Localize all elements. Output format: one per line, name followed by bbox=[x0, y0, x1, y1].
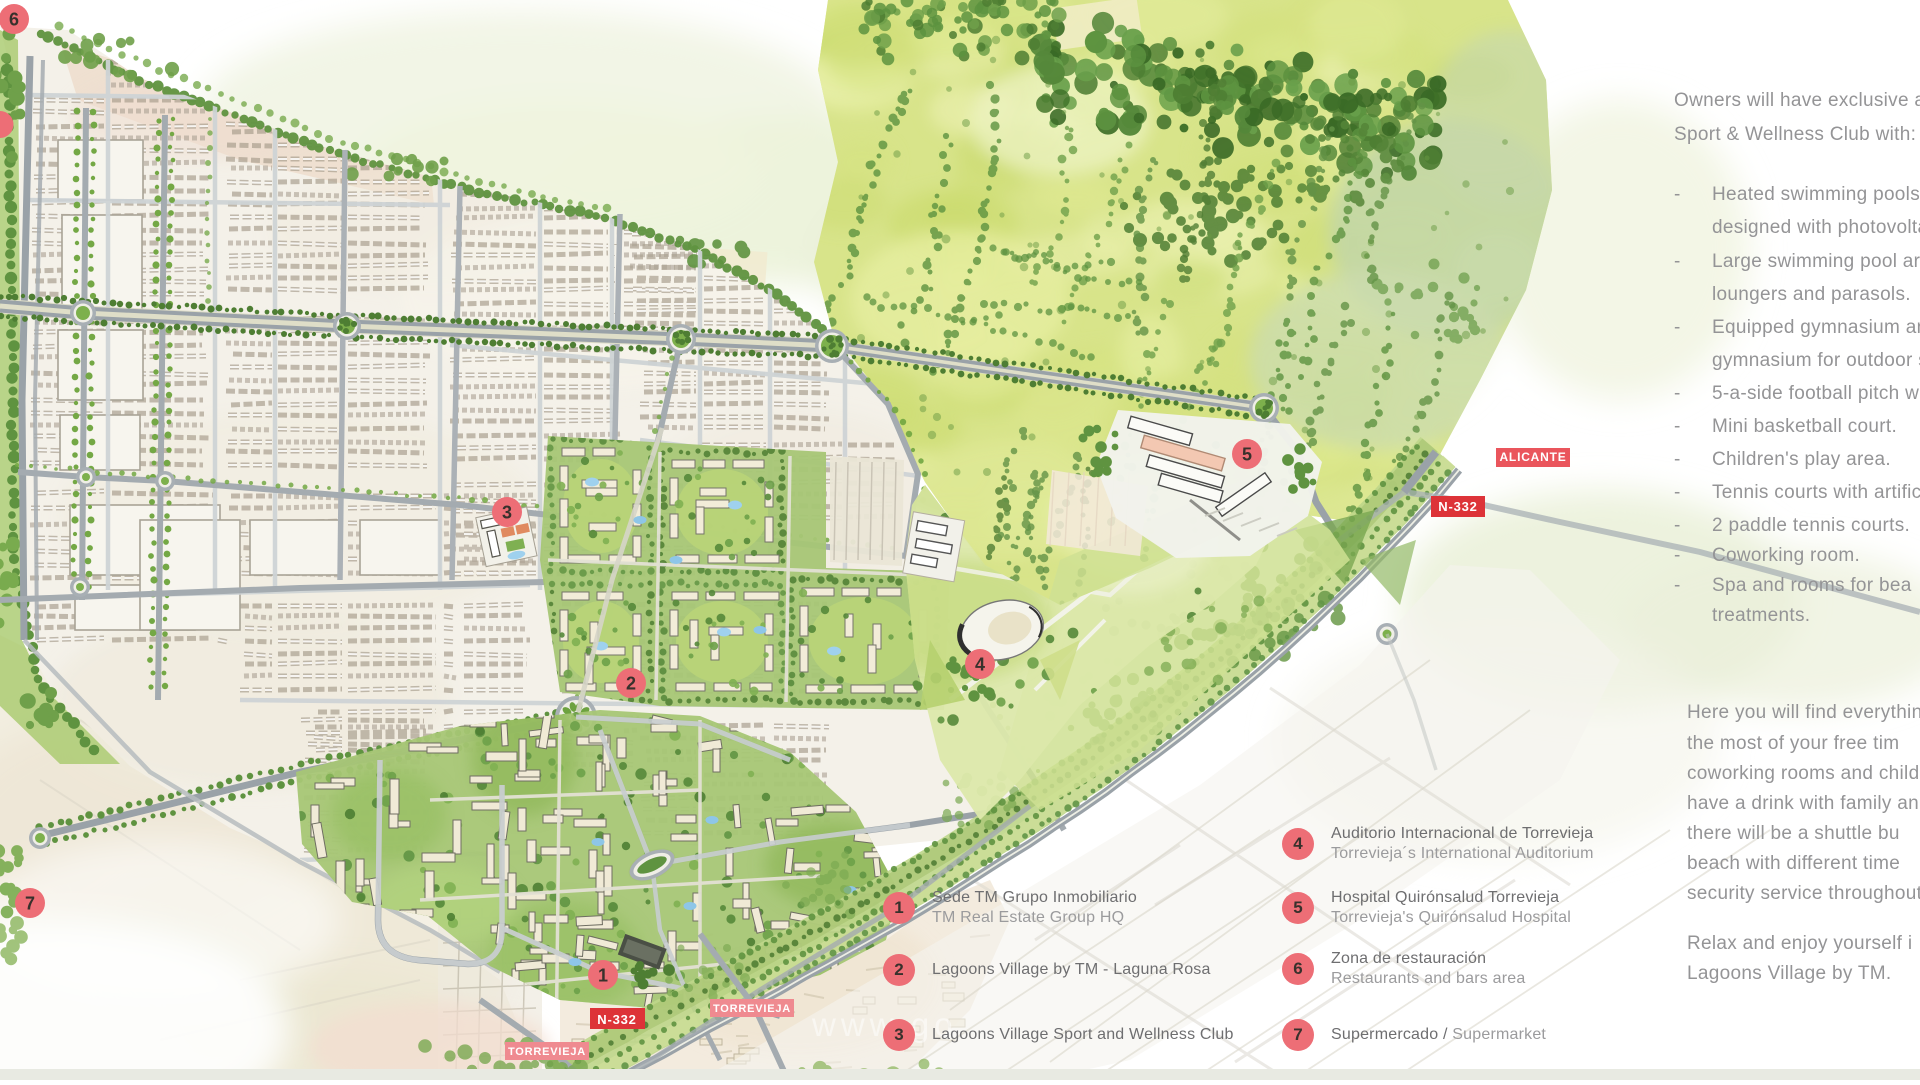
svg-text:5: 5 bbox=[1242, 445, 1252, 465]
svg-text:1: 1 bbox=[598, 966, 608, 986]
svg-text:TORREVIEJA: TORREVIEJA bbox=[508, 1046, 586, 1058]
svg-text:TORREVIEJA: TORREVIEJA bbox=[713, 1003, 791, 1015]
svg-text:7: 7 bbox=[25, 894, 35, 914]
svg-text:ALICANTE: ALICANTE bbox=[1499, 450, 1566, 464]
svg-text:4: 4 bbox=[975, 655, 985, 675]
svg-text:N-332: N-332 bbox=[597, 1012, 636, 1027]
svg-text:6: 6 bbox=[9, 10, 19, 30]
svg-text:N-332: N-332 bbox=[1438, 499, 1477, 514]
svg-text:2: 2 bbox=[626, 674, 636, 694]
svg-text:3: 3 bbox=[502, 503, 512, 523]
